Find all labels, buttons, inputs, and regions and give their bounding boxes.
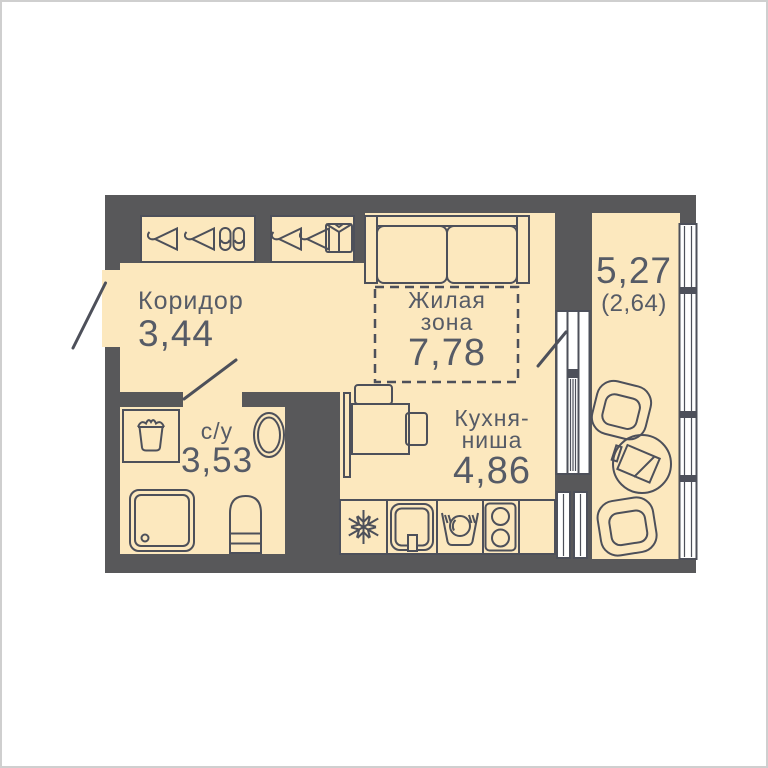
bathroom-area: 3,53 [165, 442, 269, 479]
floor-entry-bump [102, 270, 120, 347]
bathroom-label: с/у 3,53 [165, 420, 269, 479]
kitchen-label: Кухня- ниша 4,86 [436, 407, 548, 491]
floor-wardrobe-right [270, 215, 355, 263]
kitchen-area: 4,86 [436, 451, 548, 491]
corridor-name: Коридор [138, 288, 258, 314]
balcony-area-counted: (2,64) [580, 291, 688, 317]
living-zone-label: Жилая зона 7,78 [374, 289, 520, 373]
kitchen-name-line1: Кухня- [436, 407, 548, 429]
balcony-area-total: 5,27 [580, 251, 688, 291]
floor-bathroom-door-gap [183, 392, 242, 407]
living-area: 7,78 [374, 333, 520, 373]
balcony-label: 5,27 (2,64) [580, 251, 688, 317]
floor-plan-canvas: Коридор 3,44 Жилая зона 7,78 Кухня- ниша… [0, 0, 768, 768]
corridor-area: 3,44 [138, 314, 258, 354]
kitchen-name-line2: ниша [436, 429, 548, 451]
bathroom-name: с/у [165, 420, 269, 442]
corridor-label: Коридор 3,44 [138, 288, 258, 354]
living-name-line2: зона [374, 311, 520, 333]
entry-door-swing [73, 283, 106, 348]
living-name-line1: Жилая [374, 289, 520, 311]
floor-wardrobe-left [140, 215, 256, 263]
